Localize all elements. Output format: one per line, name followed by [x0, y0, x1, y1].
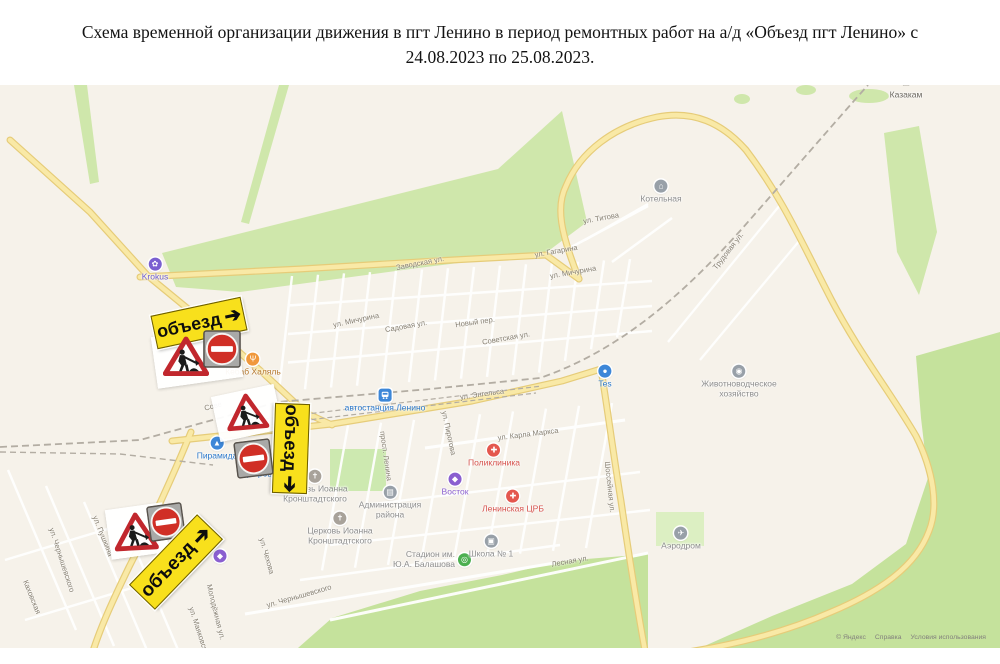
- map-poi-vostok[interactable]: ◆Восток: [442, 473, 469, 498]
- attribution-copyright[interactable]: © Яндекс: [836, 634, 866, 641]
- church-ioanna-1-icon: ✝: [309, 470, 322, 483]
- map-poi-piramida[interactable]: ▲Пирамида: [197, 437, 238, 462]
- map-poi-poliklinika[interactable]: ✚Поликлиника: [468, 444, 520, 469]
- tes-label: Tes: [598, 380, 611, 390]
- administratsiya-label: Администрация района: [359, 501, 421, 521]
- aerodrom-label: Аэродром: [661, 542, 701, 552]
- vostok-icon: ◆: [448, 473, 461, 486]
- avtostantsiya-lenino-icon: [379, 389, 392, 402]
- detour-arrow-icon: ➔: [222, 302, 243, 329]
- map-poi-aerodrom[interactable]: ✈Аэродром: [661, 527, 701, 552]
- roadwork-sign-icon: [224, 391, 269, 432]
- leninskaya-crb-icon: ✚: [506, 490, 519, 503]
- attribution-help-link[interactable]: Справка: [875, 634, 902, 641]
- map-poi-kazakam-monument[interactable]: ♜Казакам: [890, 85, 923, 100]
- page-title: Схема временной организации движения в п…: [50, 20, 950, 71]
- kotelnaya-label: Котельная: [640, 195, 681, 205]
- detour-sign: объезд➔: [272, 402, 310, 493]
- map-poi-zhivotnovodcheskoe[interactable]: ◉Животноводческое хозяйство: [701, 365, 776, 400]
- kotelnaya-icon: ⌂: [655, 180, 668, 193]
- map-canvas[interactable]: Заводская ул.ул. Титоваул. Гагаринаул. М…: [0, 85, 1000, 648]
- krokus-label: Krokus: [142, 273, 168, 283]
- poi-dot-icon: ◆: [214, 550, 227, 563]
- map-poi-shkola-1[interactable]: ▣Школа № 1: [469, 535, 513, 560]
- attribution-terms-link[interactable]: Условия использования: [911, 634, 986, 641]
- detour-sign-text: объезд: [279, 404, 303, 472]
- title-line-1: Схема временной организации движения в п…: [50, 20, 950, 45]
- aerodrom-icon: ✈: [674, 527, 687, 540]
- administratsiya-icon: ▤: [383, 486, 396, 499]
- vostok-label: Восток: [442, 488, 469, 498]
- church-ioanna-2-icon: ✝: [334, 512, 347, 525]
- tes-icon: ●: [598, 365, 611, 378]
- map-poi-leninskaya-crb[interactable]: ✚Ленинская ЦРБ: [482, 490, 544, 515]
- zhivotnovodcheskoe-label: Животноводческое хозяйство: [701, 380, 776, 400]
- map-poi-stadion-balashova[interactable]: Стадион им. Ю.А. Балашова◎: [393, 550, 471, 570]
- minor-street: [288, 331, 652, 363]
- map-attribution: © Яндекс Справка Условия использования: [836, 634, 986, 641]
- minor-street: [513, 264, 526, 375]
- minor-street: [668, 205, 780, 342]
- map-poi-kotelnaya[interactable]: ⌂Котельная: [640, 180, 681, 205]
- minor-street: [435, 268, 448, 380]
- minor-street: [617, 259, 630, 337]
- stadion-balashova-label: Стадион им. Ю.А. Балашова: [393, 550, 455, 570]
- map-poi-avtostantsiya-lenino[interactable]: автостанция Ленино: [345, 389, 426, 414]
- map-poi-poi-dot[interactable]: ◆: [214, 550, 227, 563]
- shkola-1-icon: ▣: [485, 535, 498, 548]
- detour-arrow-icon: ➔: [277, 475, 303, 493]
- piramida-label: Пирамида: [197, 452, 238, 462]
- krokus-icon: ✿: [149, 258, 162, 271]
- no-entry-sign-icon: [232, 437, 273, 478]
- kebab-halal-icon: Ψ: [247, 353, 260, 366]
- kazakam-monument-icon: ♜: [901, 85, 911, 89]
- title-line-2: 24.08.2023 по 25.08.2023.: [50, 45, 950, 70]
- page: Схема временной организации движения в п…: [0, 0, 1000, 664]
- no-entry-sign-icon: [203, 330, 241, 368]
- avtostantsiya-lenino-label: автостанция Ленино: [345, 404, 426, 414]
- map-poi-administratsiya[interactable]: ▤Администрация района: [359, 486, 421, 521]
- poliklinika-label: Поликлиника: [468, 459, 520, 469]
- church-ioanna-2-label: Церковь Иоанна Кронштадтского: [307, 527, 372, 547]
- kazakam-monument-label: Казакам: [890, 91, 923, 101]
- poliklinika-icon: ✚: [488, 444, 501, 457]
- zhivotnovodcheskoe-icon: ◉: [733, 365, 746, 378]
- map-poi-krokus[interactable]: ✿Krokus: [142, 258, 168, 283]
- minor-street: [612, 218, 672, 262]
- leninskaya-crb-label: Ленинская ЦРБ: [482, 505, 544, 515]
- shkola-1-label: Школа № 1: [469, 550, 513, 560]
- map-poi-tes[interactable]: ●Tes: [598, 365, 611, 390]
